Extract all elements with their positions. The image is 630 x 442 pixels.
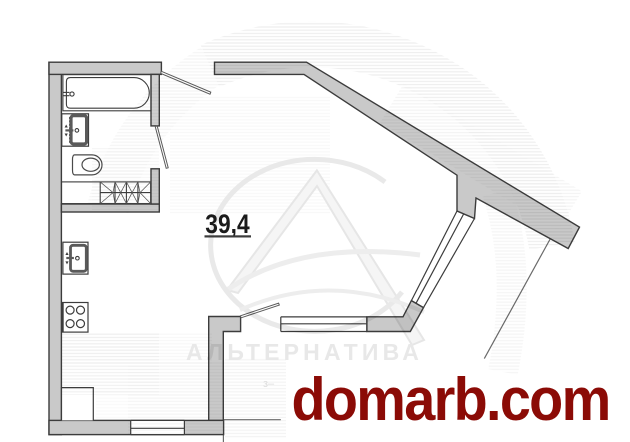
svg-text:domarb.com: domarb.com — [292, 366, 610, 433]
svg-text:39,4: 39,4 — [205, 209, 250, 239]
svg-text:з–: з– — [263, 378, 275, 390]
svg-text:АЛЬТЕРНАТИВА: АЛЬТЕРНАТИВА — [186, 339, 423, 365]
